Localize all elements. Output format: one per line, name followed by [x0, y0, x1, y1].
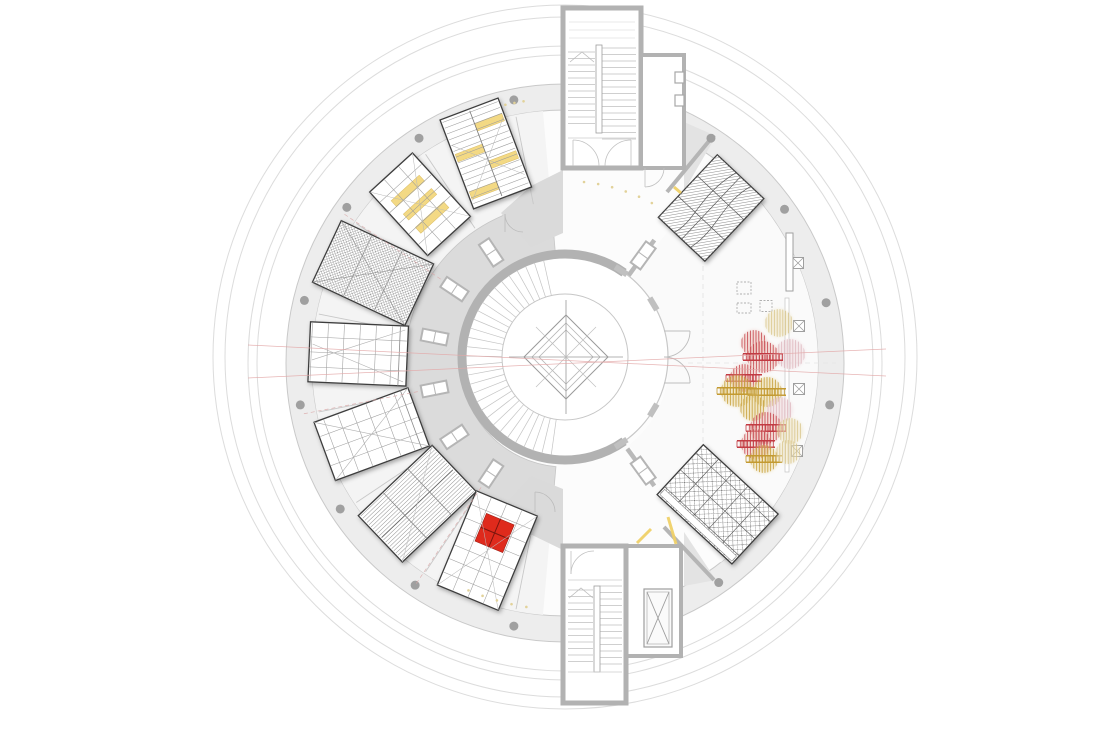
glazing-dot: [638, 195, 641, 198]
stair-mid-wall: [596, 45, 602, 133]
wall-niche: [675, 72, 684, 83]
column-dot: [342, 203, 351, 212]
column-dot: [411, 581, 420, 590]
tree-pale: [776, 440, 800, 464]
counter: [786, 233, 793, 291]
tree-pale: [765, 309, 793, 337]
glazing-dot: [496, 599, 499, 602]
column-dot: [509, 622, 518, 631]
glazing-dot: [525, 606, 528, 609]
column-dot: [296, 400, 305, 409]
glazing-dot: [597, 183, 600, 186]
stair-tower-top: [563, 8, 684, 187]
column-dot: [714, 578, 723, 587]
column-dot: [780, 205, 789, 214]
glazing-dot: [624, 190, 627, 193]
glazing-dot: [481, 595, 484, 598]
column-dot: [825, 400, 834, 409]
glazing-dot: [583, 181, 586, 184]
glazing-dot: [513, 102, 516, 105]
column-dot: [300, 296, 309, 305]
x-table: [794, 321, 805, 332]
column-dot: [822, 298, 831, 307]
glazing-dot: [467, 589, 470, 592]
tree-pale: [777, 418, 803, 444]
stair-mid-wall: [594, 586, 600, 672]
column-dot: [336, 504, 345, 513]
stair-tower-bottom: [563, 546, 681, 703]
wall-niche: [675, 95, 684, 106]
floor-plan-drawing: [0, 0, 1104, 732]
room-gallery-4: [308, 322, 409, 386]
glazing-dot: [510, 603, 513, 606]
glazing-dot: [651, 202, 654, 205]
glazing-dot: [522, 100, 525, 103]
x-table: [793, 258, 804, 269]
floor-plan-page: [0, 0, 1104, 732]
glazing-dot: [611, 186, 614, 189]
x-table: [794, 384, 805, 395]
column-dot: [706, 134, 715, 143]
glazing-dot: [504, 103, 507, 106]
column-dot: [415, 134, 424, 143]
